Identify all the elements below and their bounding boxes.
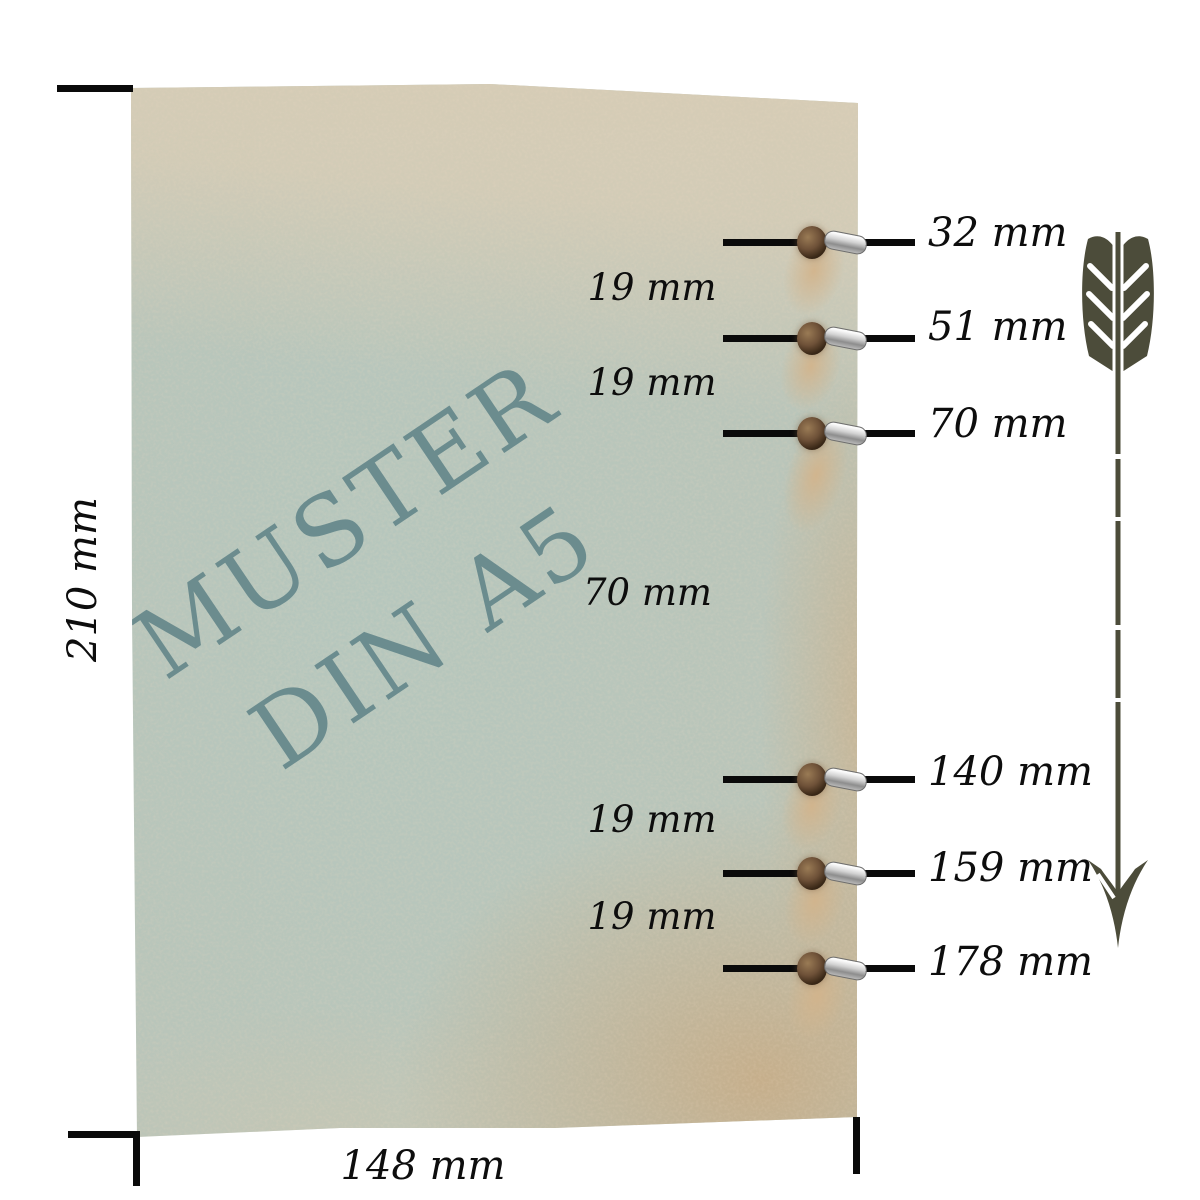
gap-label: 70 mm (575, 568, 720, 618)
hole-position-label: 70 mm (928, 399, 1098, 449)
punched-hole (797, 952, 827, 985)
gap-label: 19 mm (587, 795, 717, 845)
bottom-left-tick-vertical (133, 1131, 140, 1186)
hole-position-label: 159 mm (928, 843, 1098, 893)
hole-position-label: 140 mm (928, 747, 1098, 797)
punched-hole (797, 763, 827, 796)
gap-label: 19 mm (587, 263, 717, 313)
punched-hole (797, 857, 827, 890)
bottom-right-tick (853, 1117, 860, 1174)
punched-hole (797, 417, 827, 450)
punched-hole (797, 226, 827, 259)
gap-label: 19 mm (587, 892, 717, 942)
hole-position-label: 51 mm (928, 302, 1098, 352)
hole-position-label: 178 mm (928, 937, 1098, 987)
top-left-tick (57, 85, 133, 92)
gap-label: 19 mm (587, 358, 717, 408)
bottom-left-tick-horizontal (68, 1131, 140, 1138)
sheet-height-label: 210 mm (61, 512, 105, 662)
sheet-width-label: 148 mm (338, 1142, 508, 1190)
diagram-canvas: MUSTER DIN A5 32 mm 51 mm 70 mm 140 mm 1… (0, 0, 1200, 1200)
down-arrow-icon (1074, 232, 1162, 950)
hole-position-label: 32 mm (928, 208, 1098, 258)
punched-hole (797, 322, 827, 355)
